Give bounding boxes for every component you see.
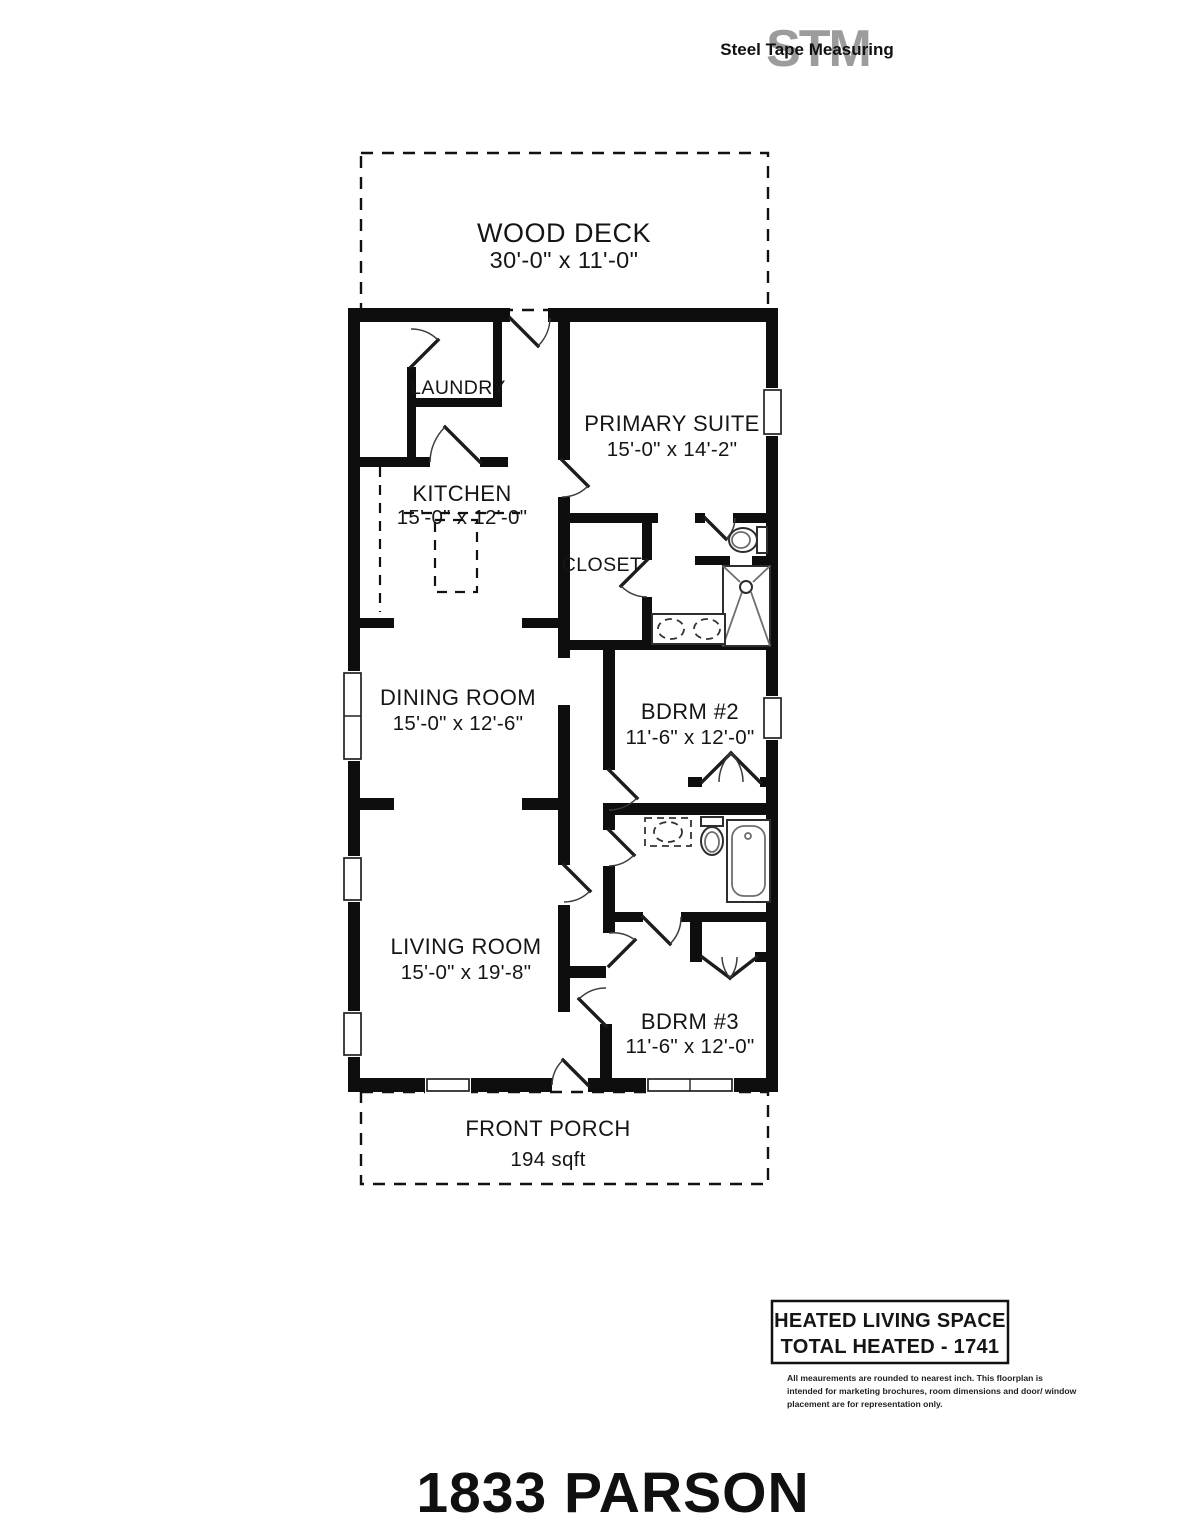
kitchen-label: KITCHEN bbox=[412, 481, 511, 506]
wood-deck-dims: 30'-0" x 11'-0" bbox=[490, 247, 639, 273]
heated-space-line2: TOTAL HEATED - 1741 bbox=[781, 1336, 1000, 1358]
steel-tape-measuring-logo: STM Steel Tape Measuring bbox=[720, 20, 894, 78]
page-title: 1833 PARSON bbox=[416, 1461, 809, 1525]
primary-suite-label: PRIMARY SUITE bbox=[584, 411, 760, 436]
bdrm3-door bbox=[579, 988, 606, 1026]
laundry-door bbox=[411, 329, 438, 367]
shower-fixture bbox=[723, 566, 770, 646]
laundry-label: LAUNDRY bbox=[410, 377, 506, 399]
front-porch-label: FRONT PORCH bbox=[465, 1116, 630, 1141]
dining-room-dims: 15'-0" x 12'-6" bbox=[393, 712, 524, 735]
disclaimer: All meaurements are rounded to nearest i… bbox=[787, 1373, 1077, 1409]
primary-suite-window bbox=[762, 388, 784, 436]
floorplan-svg: STM Steel Tape Measuring bbox=[0, 0, 1187, 1536]
hall-bath-toilet-fixture bbox=[701, 817, 723, 855]
heated-space-line1: HEATED LIVING SPACE bbox=[774, 1310, 1006, 1332]
hall-bath-sink-fixture bbox=[645, 818, 691, 846]
dining-window bbox=[342, 671, 364, 761]
kitchen-island-outline bbox=[435, 520, 477, 592]
bdrm2-window bbox=[762, 696, 784, 740]
living-room-dims: 15'-0" x 19'-8" bbox=[401, 961, 532, 984]
kitchen-door bbox=[430, 427, 480, 462]
living-room-label: LIVING ROOM bbox=[390, 934, 541, 959]
bdrm2-dims: 11'-6" x 12'-0" bbox=[625, 726, 754, 749]
wood-deck-label: WOOD DECK bbox=[477, 218, 651, 248]
double-vanity-fixture bbox=[652, 614, 725, 644]
disclaimer-line3: placement are for representation only. bbox=[787, 1399, 943, 1409]
back-door bbox=[510, 318, 550, 346]
bdrm3-closet-double-doors bbox=[702, 957, 757, 978]
front-porch-dims: 194 sqft bbox=[510, 1148, 585, 1171]
primary-suite-dims: 15'-0" x 14'-2" bbox=[607, 438, 738, 461]
dining-room-label: DINING ROOM bbox=[380, 685, 536, 710]
front-door bbox=[552, 1060, 588, 1085]
bdrm3-front-window bbox=[646, 1076, 734, 1094]
living-window-lower bbox=[342, 1011, 364, 1057]
closet-label: CLOSET bbox=[562, 554, 642, 576]
disclaimer-line2: intended for marketing brochures, room d… bbox=[787, 1386, 1077, 1396]
bdrm3-dims: 11'-6" x 12'-0" bbox=[625, 1035, 754, 1058]
living-front-window bbox=[425, 1076, 471, 1094]
bdrm2-closet-double-doors bbox=[702, 753, 760, 782]
bath2-hall-door bbox=[643, 917, 681, 944]
kitchen-dims: 15'-0" x 12'-0" bbox=[397, 506, 528, 529]
floorplan-page: STM Steel Tape Measuring bbox=[0, 0, 1187, 1536]
disclaimer-line1: All meaurements are rounded to nearest i… bbox=[787, 1373, 1043, 1383]
bdrm3-label: BDRM #3 bbox=[641, 1009, 739, 1034]
hall-door bbox=[564, 865, 590, 902]
linen-closet-door bbox=[609, 933, 635, 966]
heated-living-space-box: HEATED LIVING SPACE TOTAL HEATED - 1741 bbox=[772, 1301, 1008, 1363]
living-window-upper bbox=[342, 856, 364, 902]
primary-toilet-fixture bbox=[729, 527, 767, 553]
bathtub-fixture bbox=[727, 820, 770, 902]
bath2-door bbox=[609, 830, 634, 866]
bdrm2-label: BDRM #2 bbox=[641, 699, 739, 724]
primary-suite-door bbox=[562, 460, 588, 497]
logo-text: Steel Tape Measuring bbox=[720, 40, 894, 59]
